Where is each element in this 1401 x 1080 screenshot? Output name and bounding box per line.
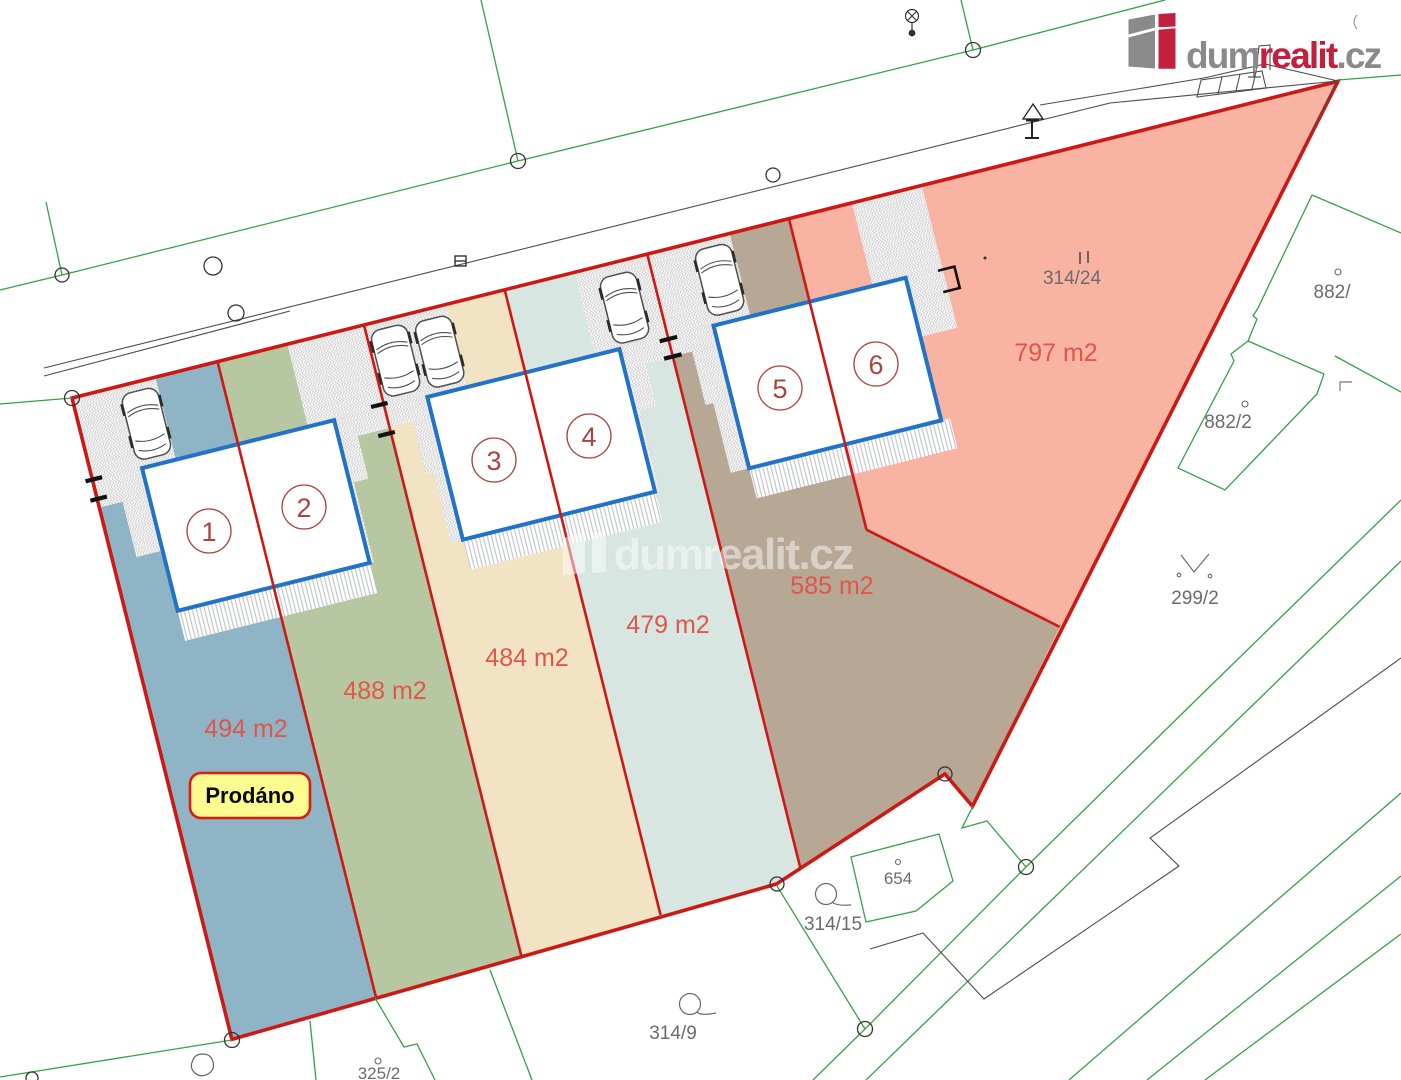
svg-text:325/2: 325/2 [358, 1064, 401, 1080]
svg-text:479 m2: 479 m2 [626, 611, 709, 639]
svg-text:1: 1 [201, 517, 216, 547]
svg-text:585 m2: 585 m2 [790, 572, 873, 600]
svg-text:484 m2: 484 m2 [485, 644, 568, 672]
svg-text:6: 6 [868, 350, 883, 380]
svg-text:494 m2: 494 m2 [204, 715, 287, 743]
svg-text:Prodáno: Prodáno [205, 783, 294, 808]
svg-text:2: 2 [296, 493, 311, 523]
svg-text:3: 3 [486, 446, 501, 476]
svg-text:488 m2: 488 m2 [343, 677, 426, 705]
svg-text:654: 654 [884, 869, 912, 888]
svg-text:882/2: 882/2 [1204, 412, 1252, 433]
svg-text:5: 5 [772, 374, 787, 404]
svg-text:4: 4 [581, 422, 596, 452]
svg-text:314/15: 314/15 [804, 914, 862, 935]
svg-text:797 m2: 797 m2 [1014, 339, 1097, 367]
svg-text:dumrealit.cz: dumrealit.cz [1186, 35, 1382, 76]
svg-text:299/2: 299/2 [1171, 588, 1219, 609]
svg-text:882/: 882/ [1314, 282, 1352, 303]
svg-text:314/9: 314/9 [649, 1023, 697, 1044]
svg-text:314/24: 314/24 [1043, 268, 1102, 289]
